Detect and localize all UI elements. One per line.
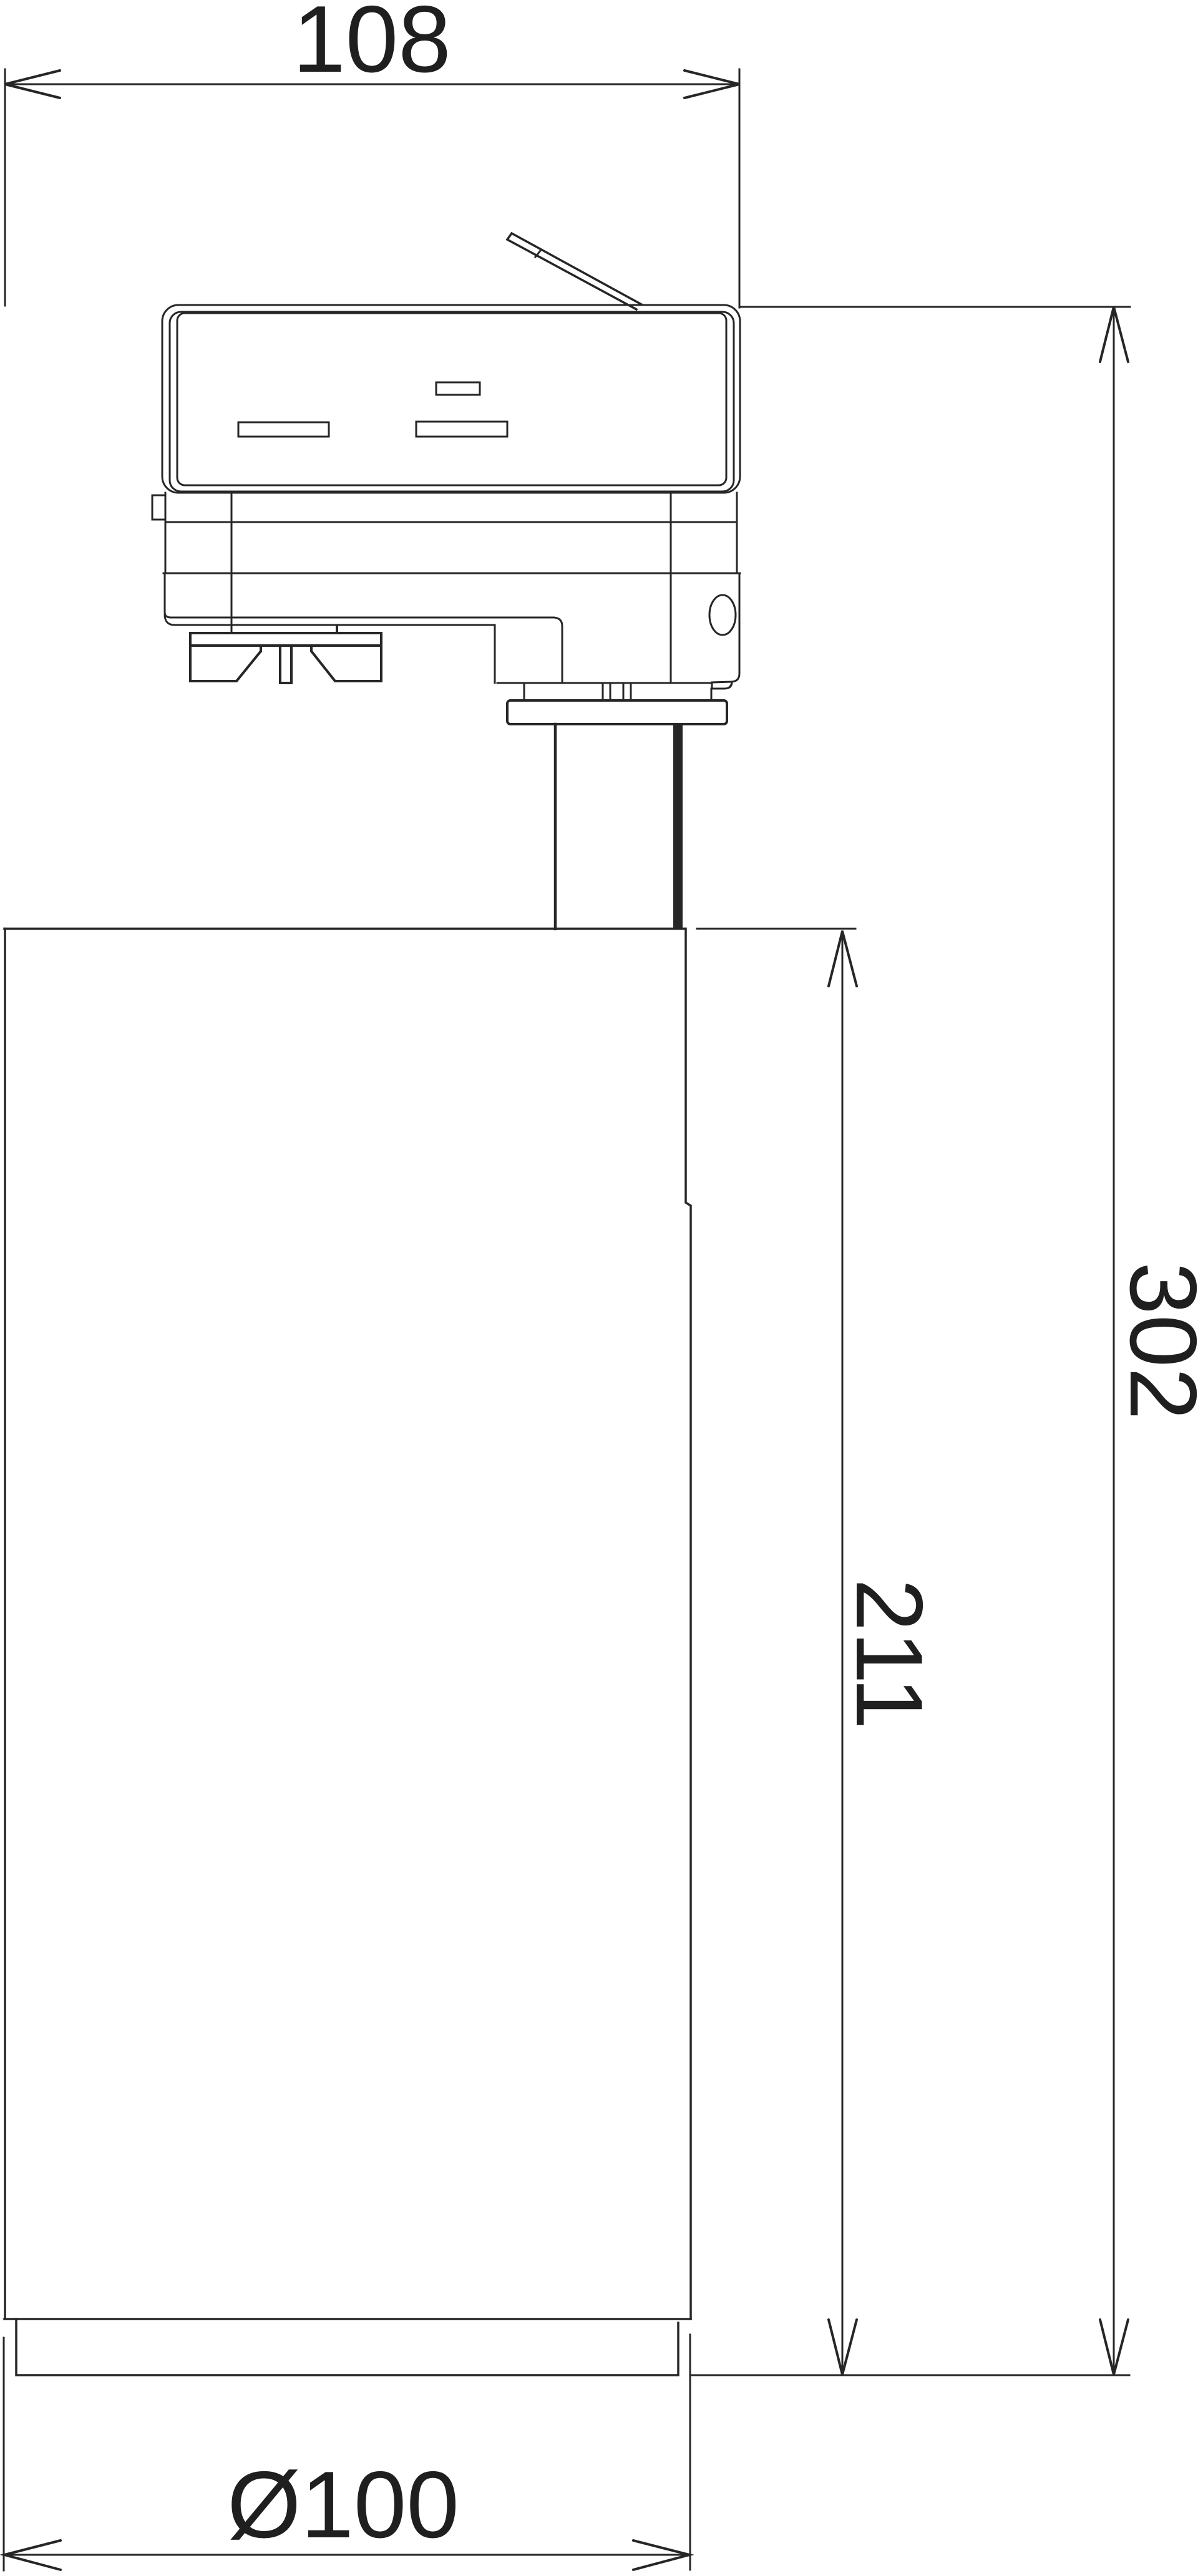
svg-text:Ø100: Ø100 xyxy=(227,2452,459,2558)
svg-text:108: 108 xyxy=(293,0,451,92)
svg-text:302: 302 xyxy=(1110,1262,1198,1420)
svg-text:211: 211 xyxy=(836,1579,942,1730)
